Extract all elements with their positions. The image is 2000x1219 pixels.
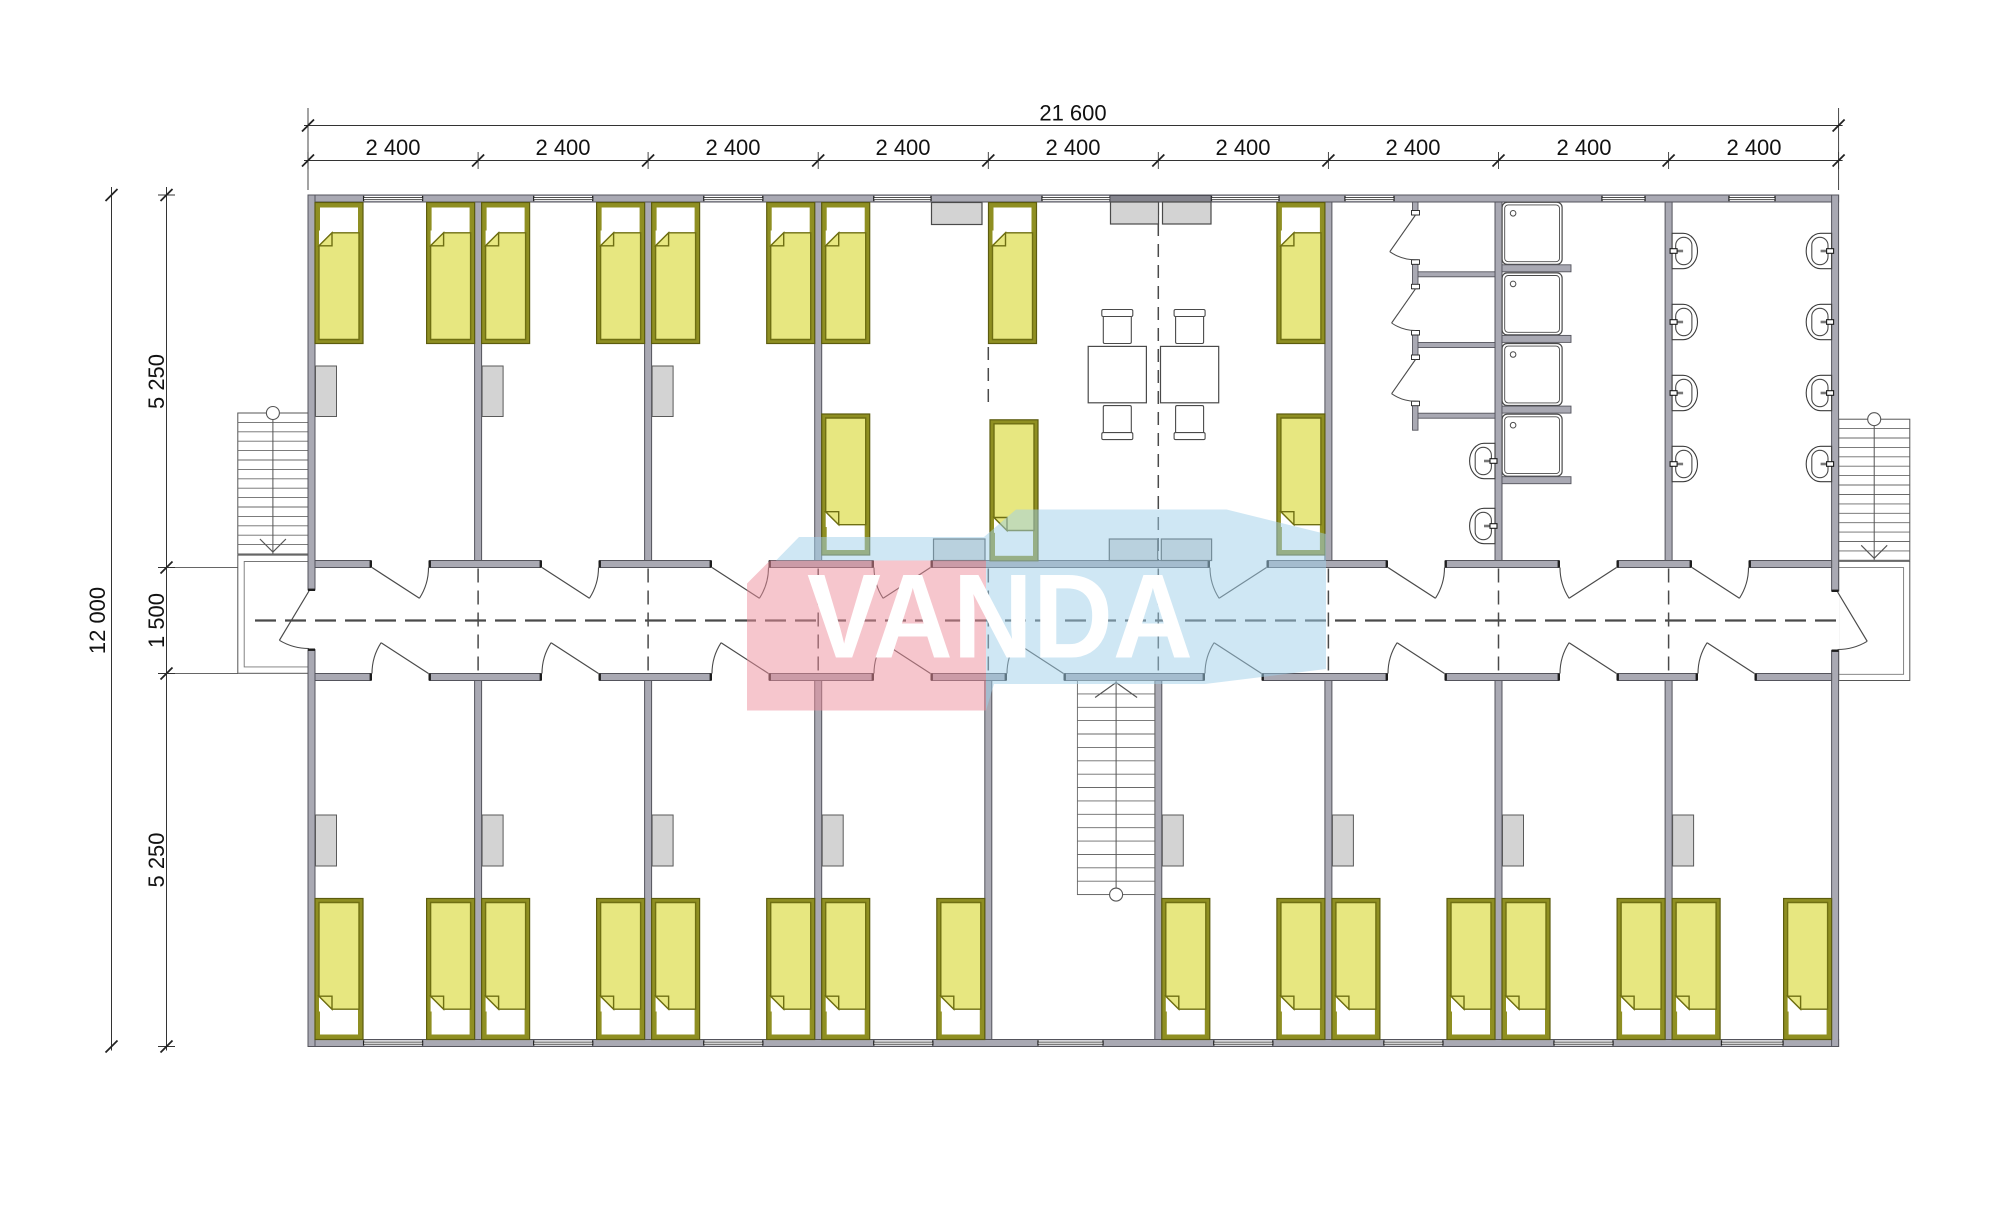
svg-text:2 400: 2 400 [1726, 135, 1781, 160]
svg-text:21 600: 21 600 [1039, 101, 1106, 126]
svg-text:2 400: 2 400 [875, 135, 930, 160]
svg-text:12 000: 12 000 [85, 587, 110, 654]
svg-text:2 400: 2 400 [365, 135, 420, 160]
svg-text:5 250: 5 250 [144, 832, 169, 887]
svg-text:2 400: 2 400 [1045, 135, 1100, 160]
svg-text:2 400: 2 400 [535, 135, 590, 160]
svg-text:2 400: 2 400 [1385, 135, 1440, 160]
svg-text:2 400: 2 400 [1556, 135, 1611, 160]
svg-text:VANDA: VANDA [807, 551, 1193, 684]
svg-text:5 250: 5 250 [144, 354, 169, 409]
svg-text:2 400: 2 400 [1215, 135, 1270, 160]
svg-text:2 400: 2 400 [705, 135, 760, 160]
svg-text:1 500: 1 500 [144, 593, 169, 648]
